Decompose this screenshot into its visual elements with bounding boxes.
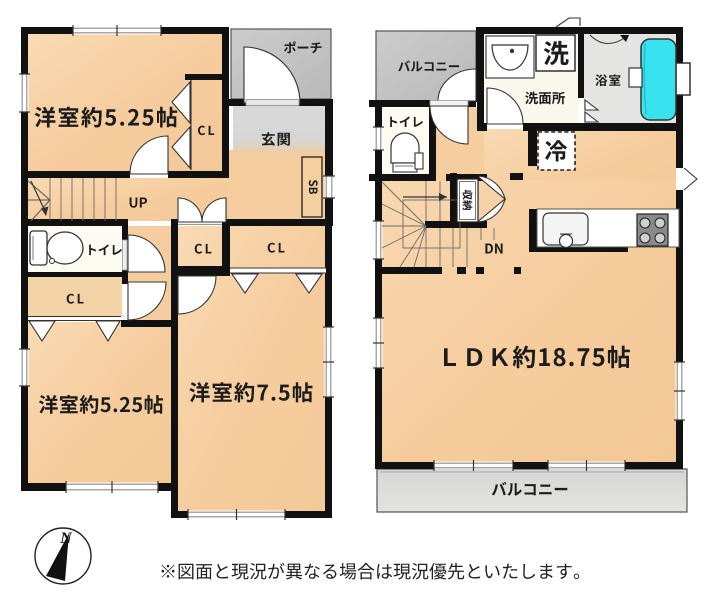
svg-text:N: N: [59, 530, 73, 547]
